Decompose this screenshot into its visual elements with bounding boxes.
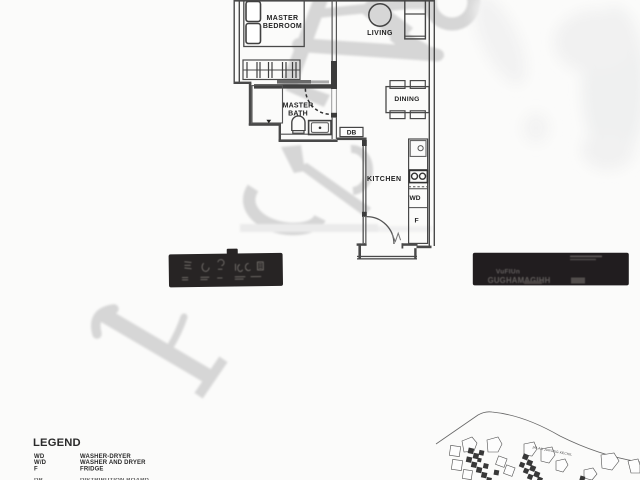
svg-text:KITCHEN: KITCHEN — [367, 176, 402, 183]
svg-text:WASHER AND DRYER: WASHER AND DRYER — [80, 460, 146, 466]
svg-text:WD: WD — [34, 454, 45, 460]
svg-text:BEDROOM: BEDROOM — [263, 23, 302, 30]
svg-text:VuFIUn: VuFIUn — [496, 269, 520, 276]
svg-text:WASHER-DRYER: WASHER-DRYER — [80, 454, 131, 460]
svg-text:W/D: W/D — [34, 460, 47, 466]
svg-text:DINING: DINING — [394, 96, 419, 103]
svg-text:LIVING: LIVING — [367, 30, 393, 37]
svg-text:MASTER: MASTER — [267, 15, 299, 22]
svg-text:F: F — [34, 466, 38, 472]
svg-text:F: F — [415, 217, 419, 224]
svg-text:FRIDGE: FRIDGE — [80, 466, 104, 472]
svg-text:BATH: BATH — [288, 110, 308, 117]
svg-text:LEGEND: LEGEND — [33, 437, 81, 449]
svg-text:DB: DB — [347, 130, 357, 137]
svg-text:WD: WD — [410, 195, 421, 202]
svg-text:MASTER: MASTER — [283, 103, 314, 110]
